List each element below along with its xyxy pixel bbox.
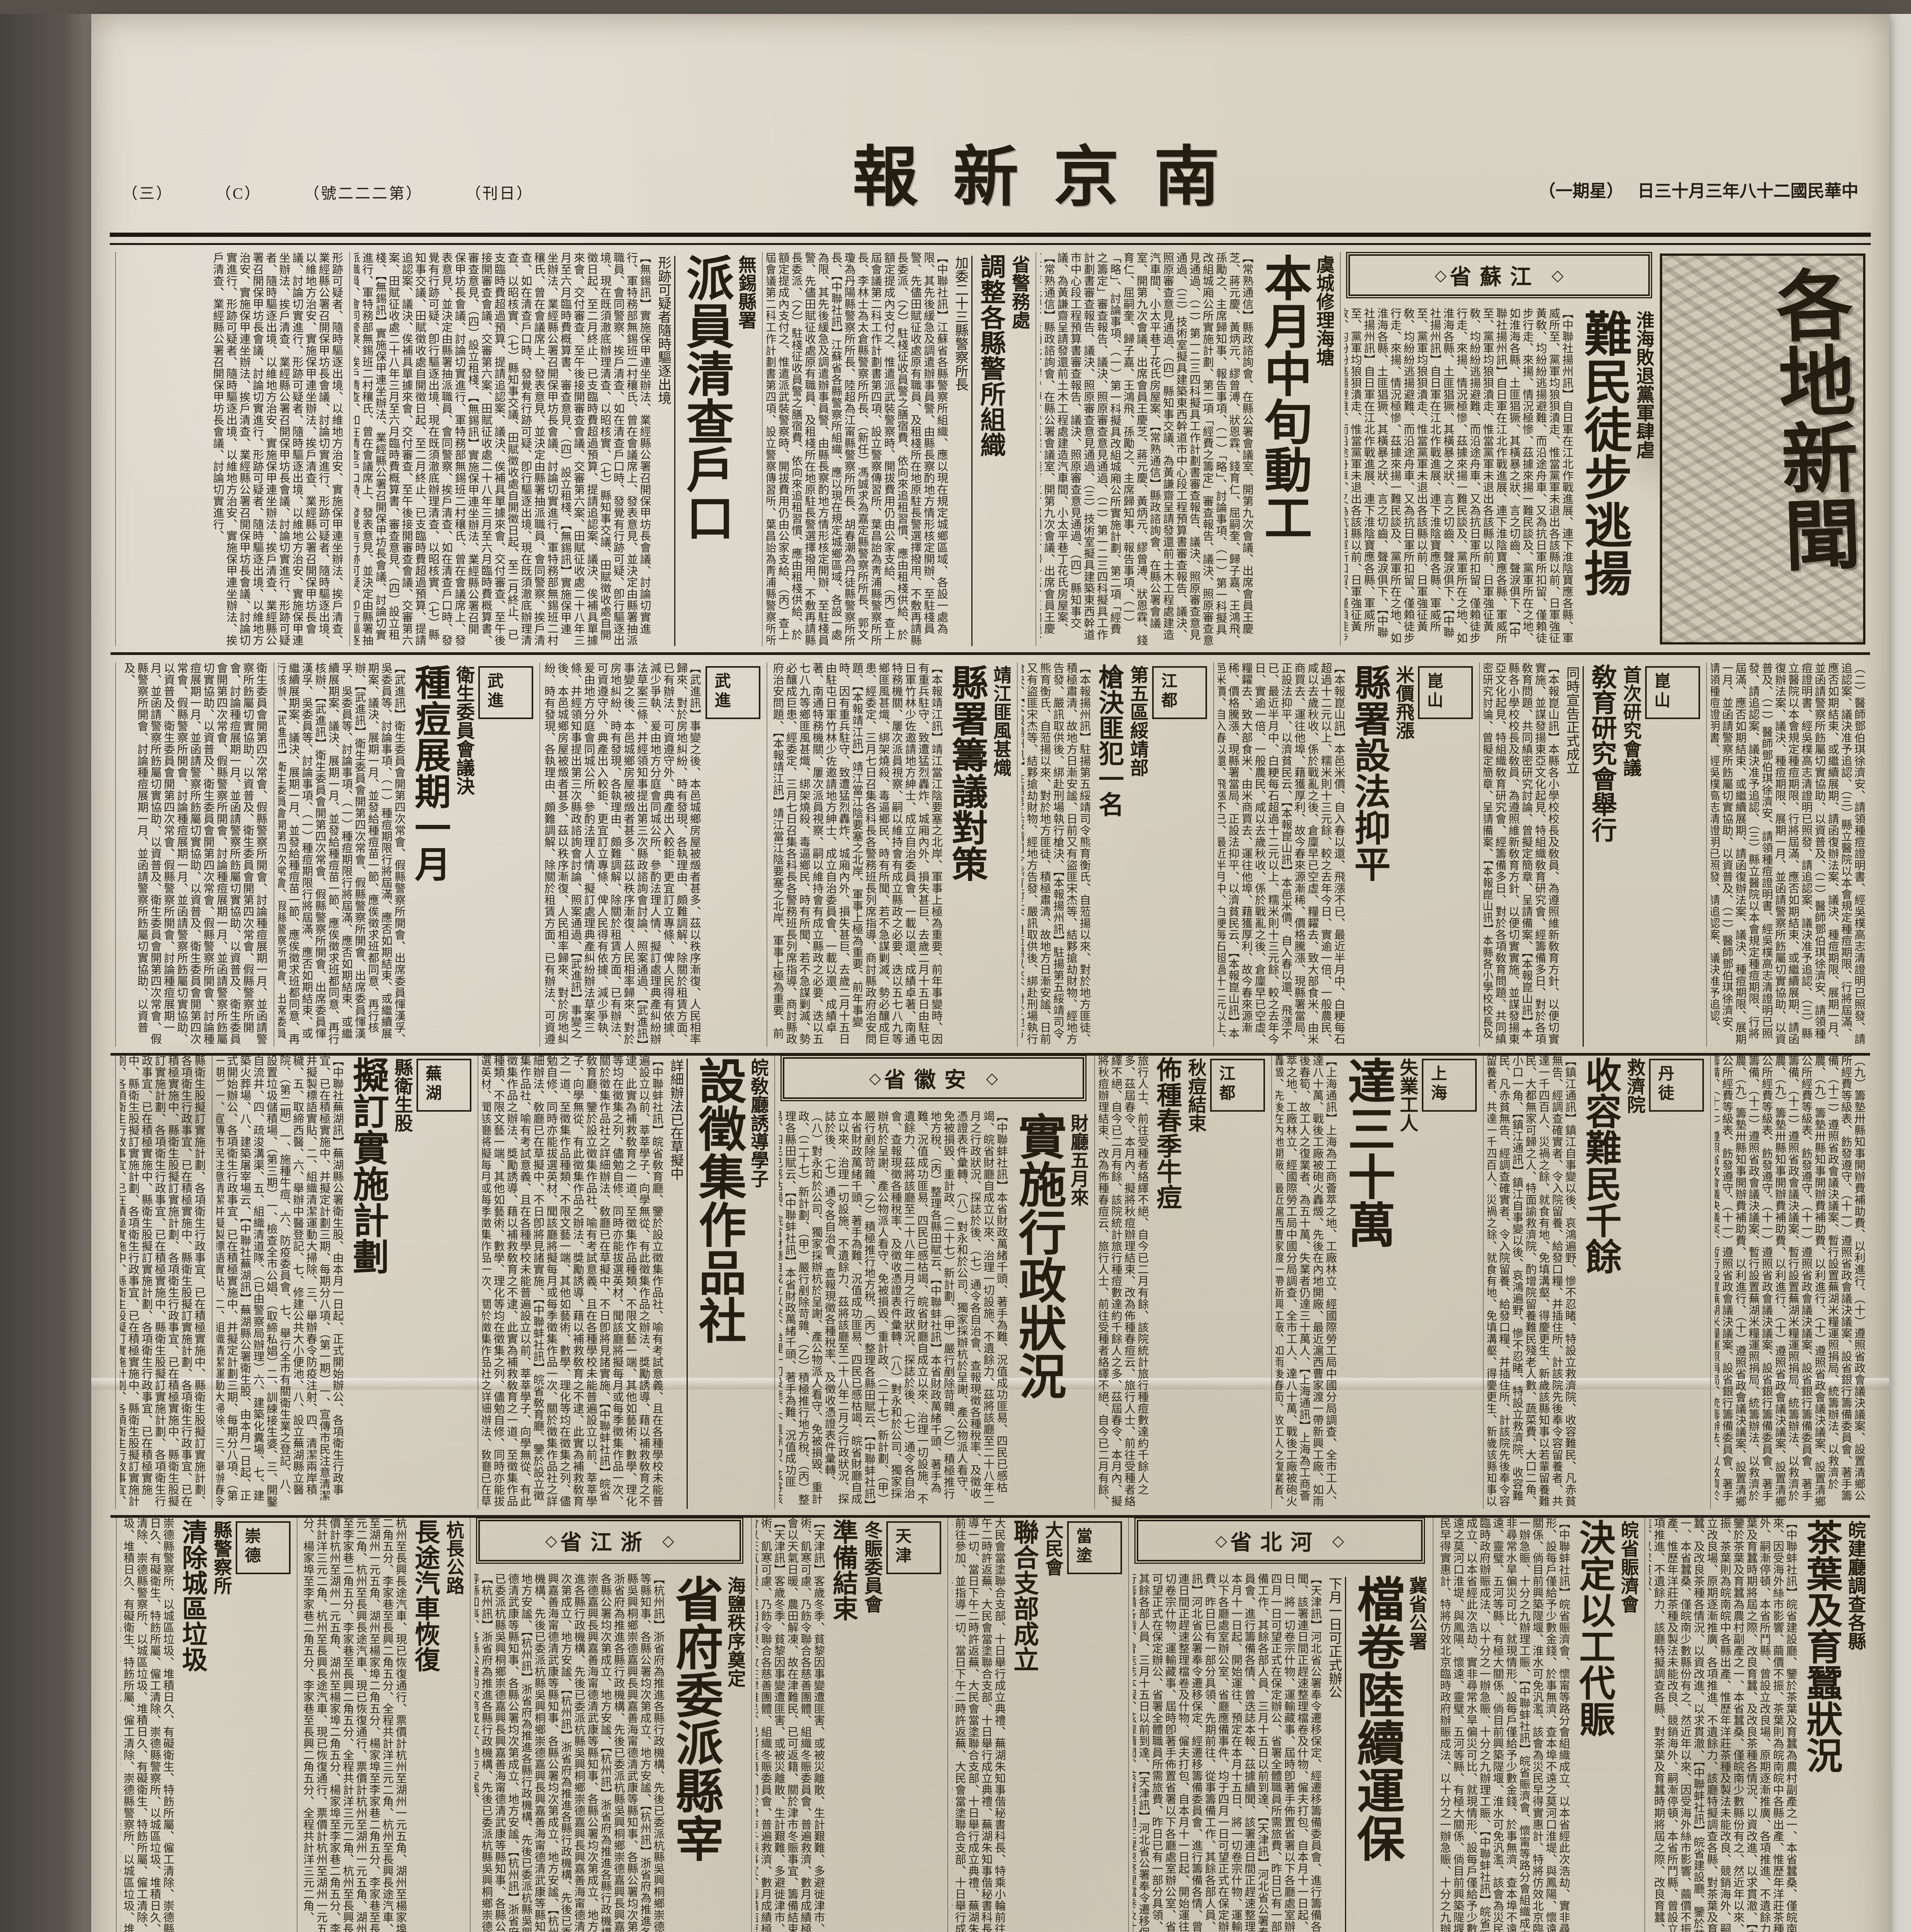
article-kicker: 縣警察所 (210, 1520, 231, 1932)
region-label: 丹徒 (1649, 1059, 1704, 1112)
region-label-text: 上海 (1426, 1065, 1449, 1104)
page-header: （三） （C） （號二二二第） （刊日） 報新京南 日三十月三年八十二國民華中 … (122, 134, 1858, 219)
article-headline: 設徵集作品社 (692, 1056, 743, 1509)
article-檔卷陸續運保: ◇省北河◇冀省公署檔卷陸續運保下月一日可正式辦公【天津訊】河北省公署奉令遷移保定… (1128, 1517, 1426, 1932)
article-headline: 清除城區垃圾 (179, 1519, 206, 1932)
newspaper-page: （三） （C） （號二二二第） （刊日） 報新京南 日三十月三年八十二國民華中 … (91, 14, 1889, 1932)
article-headline: 準備結束 (830, 1519, 856, 1932)
article-body: 大民會當塗聯合支部、十日舉行成立典禮、蕪湖朱知事偕秘書科長、特乘小輪前往參加、並… (952, 1517, 1006, 1932)
article-kicker: 大民會 (1042, 1520, 1063, 1932)
article-body: 旅行人士、前往受種者絡繹不絕、自今已二月有餘、該院統計旅行種痘數達約千餘人之多、… (1099, 1055, 1149, 1509)
article-headline: 聯合支部成立 (1010, 1519, 1037, 1932)
region-label: 當塗 (1067, 1521, 1122, 1574)
region-label-text: 崑山 (1422, 672, 1445, 711)
article-main: 淮海敗退黨軍肆虐難民徒步逃揚【中聯社揚州訊】自日軍在江北作戰進展、連下淮陰寶應各… (1345, 308, 1654, 646)
article-headline: 本月中旬動工 (1258, 253, 1308, 646)
section-label: 省蘇江 (1450, 260, 1540, 291)
article-kicker: 冀省公署 (1406, 1576, 1426, 1932)
article-headline: 實施行政狀況 (1012, 1112, 1063, 1509)
article-column: 縣衛生股擬訂實施計劃、各項衛生行政事宜、已在積極實施中、縣衛生股擬訂實施計劃、各… (115, 1055, 206, 1509)
article-body: 【中聯社訊】江蘇省各縣警察所組織、應以現在規定城鄉區域、各設一處為限、其先後緩急… (767, 252, 948, 646)
article-subhead: 詳細辦法已在草擬中 (668, 1059, 688, 1509)
article-kicker: 第五區綏靖部 (1127, 665, 1148, 1047)
article-headline: 派員清查戶口 (680, 253, 730, 646)
diamond-icon: ◇ (662, 1532, 674, 1550)
article-擬訂實施計劃: 蕪湖縣衛生股擬訂實施計劃【中聯社蕪湖訊】蕪湖縣公署衛生股、由本月一日起、正式開始… (212, 1055, 471, 1509)
diamond-icon: ◇ (869, 1069, 881, 1087)
article-column: 形跡可疑者、隨時驅逐出境、以維地方治安、實施保甲連坐辦法、挨戶清查、業經縣公署召… (115, 252, 343, 646)
article-headline: 槍決匪犯一名 (1095, 664, 1122, 1047)
article-設徵集作品社: 皖敎廳誘導學子設徵集作品社詳細辦法已在草擬中【中聯蚌社訊】皖省敎育廳、鑒於設立徵… (478, 1055, 768, 1509)
article-kicker: 皖省賑濟會 (1617, 1520, 1638, 1932)
article-敎育研究會舉行: 崑山首次研究會議敎育研究會舉行同時宣告正式成立【本報崑山訊】本縣各小學校校長及敎… (1479, 662, 1700, 1047)
article-body: 【天津訊】河北省公署奉令遷移保定、經遷移籌備委員會、進行籌備各情、曾迭誌本報、茲… (1133, 1573, 1322, 1932)
article-清除城區垃圾: 崇德縣警察所清除城區垃圾崇德縣警察所、以城區垃圾、堆積日久、有礙衛生、特飭所屬、… (116, 1517, 291, 1932)
article-kicker: 杭長公路 (443, 1520, 464, 1932)
article-headline: 收容難民千餘 (1581, 1056, 1619, 1509)
region-label: 武進 (478, 666, 533, 719)
news-band-provinces: 皖建廳調查各縣茶葉及育蠶狀況【中聯蚌社訊】皖省建設廳、鑒於茶葉及育蠶為農村副產之… (111, 1511, 1870, 1932)
article-body: 【中聯蚌社訊】皖省建設廳、鑒於茶葉及育蠶為農村副產之一、本省蠶桑、僅皖南少數縣份… (1649, 1517, 1797, 1932)
article-body: 【上海通訊】上海為工商薈萃之地、工廠林立、經國際勞工局中國分局調查、全市工人、達… (1276, 1055, 1337, 1509)
region-label: 崑山 (1418, 666, 1473, 719)
article-headline: 種痘展期一月 (410, 664, 449, 1047)
article-headline: 難民徒步逃揚 (1578, 309, 1628, 646)
article-body: 杭州至長興長途汽車、現已恢復通行、票價計杭州至湖州一元五角、湖州至楊家埠二角五分… (301, 1517, 407, 1932)
article-調整各縣警所組織: 省警務處調整各縣警所組織加委二十三縣警察所長【中聯社訊】江蘇省各縣警察所組織、應… (762, 252, 1029, 646)
local-news-title: 各地新聞 (1766, 265, 1855, 573)
article-kicker: 省警務處 (1008, 255, 1029, 646)
scan-edge-right (1889, 0, 1911, 1932)
article-body: 衛生委員會開第四次常會、假縣警察所開會、討論種痘展期一月、並函請警察所飭屬切實協… (120, 662, 267, 1047)
article-決定以工代賑: 皖省賑濟會決定以工代賑【中聯蚌社訊】皖省賑濟會、懷甯等路分會組織成立、以本省經此… (1433, 1517, 1638, 1932)
article-縣署設法抑平: 崑山米價飛漲縣署設法抑平【本報崑山訊】本邑米價、自入春以還、飛漲不已、最近半月中… (1213, 662, 1473, 1047)
issue-number: （號二二二第） (304, 181, 423, 203)
article-headline: 佈種春季牛痘 (1153, 1056, 1180, 1509)
article-body: 縣衛生股擬訂實施計劃、各項衛生行政事宜、已在積極實施中、縣衛生股擬訂實施計劃、各… (120, 1055, 206, 1509)
article-聯合支部成立: 當塗大民會聯合支部成立大民會當塗聯合支部、十日舉行成立典禮、蕪湖朱知事偕秘書科長… (947, 1517, 1122, 1932)
region-label-text: 武進 (482, 672, 506, 711)
section-header: ◇省江浙◇ (478, 1520, 741, 1561)
article-headline: 長途汽車恢復 (411, 1519, 438, 1932)
article-headline: 檔卷陸續運保 (1351, 1575, 1401, 1932)
article-column: 衛生委員會開第四次常會、假縣警察所開會、討論種痘展期一月、並函請警察所飭屬切實協… (115, 662, 267, 1047)
edition-mark: （C） (216, 181, 262, 203)
article-body: 【無錫訊】實施保甲連坐辦法、業經縣公署召開保甲坊長會議、討論切實進行、軍特務部無… (354, 252, 651, 646)
article-body: 【本報靖江訊】靖江當江陰要塞之北岸、軍事上極為重要、前年事變時、因有重兵駐守、致… (771, 662, 943, 1047)
article-kicker: 皖敎廳誘導學子 (747, 1058, 768, 1509)
region-label-text: 天津 (890, 1527, 914, 1566)
article-subhead: 同時宣告正式成立 (1564, 666, 1584, 1047)
article-kicker: 淮海敗退黨軍肆虐 (1633, 311, 1654, 646)
news-band-anhui: （九）籌墊卅縣知事開辦費補助費、以利進行、（十）遵照省政會議決議案、設置清鄉公所… (111, 1049, 1870, 1518)
article-main: 財廳五月來實施行政狀況【中聯蚌社訊】本省財政萬緒千頭、著手為難、況值成功匪易、四… (779, 1111, 1088, 1509)
article-body: 【中聯蚌社訊】皖省賑濟會、懷甯等路分會組織成立、以本省經此次浩劫、實非尋常水旱偏… (1437, 1517, 1570, 1932)
section-header: ◇省蘇江◇ (1348, 254, 1650, 296)
article-種痘展期一月: 武進衛生委員會議決種痘展期一月【武進訊】衛生委員會開第四次常會、假縣警察所開會、… (274, 662, 533, 1047)
article-實施行政狀況: ◇省徽安◇財廳五月來實施行政狀況【中聯蚌社訊】本省財政萬緒千頭、著手為難、況值成… (774, 1055, 1088, 1509)
article-kicker: 虞城修理海塘 (1313, 255, 1334, 646)
article-收容難民千餘: 丹徒救濟院收容難民千餘【鎮江通訊】鎮江自事變以後、哀鴻遍野、慘不忍睹、特設立救濟… (1483, 1055, 1704, 1509)
region-label-text: 當塗 (1071, 1527, 1095, 1566)
edition-tokens: （三） （C） （號二二二第） （刊日） (122, 181, 534, 219)
article-槍決匪犯一名: 江都第五區綏靖部槍決匪犯一名【本報揚州訊】駐揚第五綏靖司令熊育衡氏、自蒞揚以來、… (1017, 662, 1207, 1047)
daily-label: （刊日） (466, 181, 534, 203)
region-label: 崑山 (1645, 666, 1700, 719)
region-label: 天津 (886, 1521, 941, 1574)
article-body: 【本報崑山訊】本縣各小學校校長及敎員、為遵照維新敎育方針、以便切實實施、並謀發揚… (1484, 662, 1559, 1047)
article-headline: 茶葉及育蠶狀況 (1802, 1519, 1840, 1932)
scan-edge-left (0, 0, 92, 1932)
article-body: 【中聯蚌社訊】皖省敎育廳、鑒於設立徵集作品社、喻有考試意義、且在各種學校未能普遍… (482, 1055, 663, 1509)
diamond-icon: ◇ (1435, 266, 1447, 284)
article-kicker: 秋痘結束 (1185, 1058, 1205, 1509)
region-label-text: 丹徒 (1653, 1065, 1676, 1104)
article-body: 【本報揚州訊】駐揚第五綏靖司令熊育衡氏、自蒞揚以來、對於地方匪徒、積極肅清、故地… (1022, 662, 1091, 1047)
article-kicker: 縣衛生股 (391, 1058, 412, 1509)
article-headline: 決定以工代賑 (1575, 1519, 1613, 1932)
article-body: 【中聯社揚州訊】自日軍在江北作戰進展、連下淮陰寶應各縣、軍威所至、黨軍均狼狽潰走… (1345, 308, 1573, 646)
local-news-graphic: 各地新聞 (1660, 253, 1865, 645)
article-本月中旬動工: 虞城修理海塘本月中旬動工【常熟通信】縣政諮詢會、在縣公署會議室、開第九次會議、出… (1035, 252, 1334, 646)
article-body: （二）醫師鄧伯琪徐濟安、請領種痘證明書、經吳樸高志清證明已照發、請追認案、議決准… (1711, 662, 1865, 1047)
dateline: 日三十月三年八十二國民華中 （一期星） (1539, 177, 1858, 219)
article-column: （二）醫師鄧伯琪徐濟安、請領種痘證明書、經吳樸高志清證明已照發、請追認案、議決准… (1706, 662, 1865, 1047)
news-band-counties: （二）醫師鄧伯琪徐濟安、請領種痘證明書、經吳樸高志清證明已照發、請追認案、議決准… (111, 656, 1870, 1056)
article-kicker: 財廳五月來 (1067, 1114, 1088, 1509)
diamond-icon: ◇ (986, 1069, 998, 1087)
article-subhead: 形跡可疑者隨時驅逐出境 (656, 256, 675, 646)
article-派員清查戶口: 無錫縣署派員清查戶口形跡可疑者隨時驅逐出境【無錫訊】實施保甲連坐辦法、業經縣公署… (349, 252, 756, 646)
article-kicker: 失業工人 (1396, 1058, 1417, 1509)
article-body: 【鎮江通訊】鎮江自事變以後、哀鴻遍野、慘不忍睹、特設立救濟院、收容難民、凡赤貧無… (1488, 1055, 1576, 1509)
article-kicker: 救濟院 (1624, 1058, 1644, 1509)
article-body: 【中聯蚌社訊】本省財政萬緒千頭、著手為難、況值成功匪易、四民已感枯竭、皖省財廳自… (779, 1111, 1008, 1509)
diamond-icon: ◇ (1215, 1532, 1227, 1550)
region-label: 武進 (706, 666, 760, 719)
region-label-text: 蕪湖 (420, 1065, 444, 1104)
article-茶葉及育蠶狀況: 皖建廳調查各縣茶葉及育蠶狀況【中聯蚌社訊】皖省建設廳、鑒於茶葉及育蠶為農村副產之… (1644, 1517, 1865, 1932)
page-number: （三） (122, 181, 173, 203)
article-headline: 達三十萬 (1341, 1056, 1392, 1509)
article-body: 【常熟通信】縣政諮詢會、在縣公署會議室、開第九次會議、出席會員王慶芝、蔣元慶、黃… (1040, 252, 1253, 646)
region-label: 崇德 (236, 1521, 291, 1574)
article-準備結束: 天津冬賑委員會準備結束【天津訊】客歲冬季、貧黎因事變遭匪害、或被災離散、生計艱難… (751, 1517, 941, 1932)
section-label: 省江浙 (560, 1525, 651, 1556)
article-kicker: 海鹽秩序奠定 (724, 1576, 745, 1932)
article-body: 【本報崑山訊】本邑米價、自入春以還、飛漲不已、最近半月中、白粳每石超過十二元以上… (1218, 662, 1345, 1047)
article-body: 【中聯社蕪湖訊】蕪湖縣公署衛生股、由本月一日起、正式開始辦公、各項衛生行政事宜、… (216, 1055, 344, 1509)
region-label-text: 崑山 (1649, 672, 1673, 711)
date-text: 日三十月三年八十二國民華中 (1637, 177, 1858, 202)
newspaper-scan: （三） （C） （號二二二第） （刊日） 報新京南 日三十月三年八十二國民華中 … (0, 0, 1911, 1932)
article-body: 【天津訊】客歲冬季、貧黎因事變遭匪害、或被災離散、生計艱難、多避徙津市、以扶老攜… (756, 1517, 825, 1932)
section-header: ◇省徽安◇ (783, 1057, 1084, 1099)
region-label: 上海 (1422, 1059, 1477, 1112)
article-body: 【武進訊】事變之後、本邑城鄉房屋被燬者甚多、茲以秩序漸復、人民相率歸來、對於房地… (544, 662, 701, 1047)
newspaper-title: 報新京南 (852, 124, 1254, 219)
article-main: 海鹽秩序奠定省府委派縣宰【杭州訊】浙省府為推進各縣行政機構、先後已委派杭縣吳興桐… (474, 1573, 745, 1932)
article-難民徒步逃揚: ◇省蘇江◇淮海敗退黨軍肆虐難民徒步逃揚【中聯社揚州訊】自日軍在江北作戰進展、連下… (1340, 252, 1654, 646)
article-subhead: 下月一日可正式辦公 (1326, 1577, 1346, 1932)
article-省府委派縣宰: ◇省江浙◇海鹽秩序奠定省府委派縣宰【杭州訊】浙省府為推進各縣行政機構、先後已委派… (470, 1517, 745, 1932)
article-body: 崇德縣警察所、以城區垃圾、堆積日久、有礙衛生、特飭所屬、僱工清除、崇德縣警察所、… (121, 1517, 174, 1932)
article-column: （九）籌墊卅縣知事開辦費補助費、以利進行、（十）遵照省政會議決議案、設置清鄉公所… (1710, 1055, 1865, 1509)
article-body: 形跡可疑者、隨時驅逐出境、以維地方治安、實施保甲連坐辦法、挨戶清查、業經縣公署召… (120, 252, 343, 646)
article-main: 冀省公署檔卷陸續運保下月一日可正式辦公【天津訊】河北省公署奉令遷移保定、經遷移籌… (1133, 1573, 1426, 1932)
article-kicker: 無錫縣署 (735, 255, 756, 646)
region-label: 江都 (1210, 1059, 1265, 1112)
article-kicker: 冬賑委員會 (861, 1520, 882, 1932)
diamond-icon: ◇ (1552, 266, 1564, 284)
article-kicker: 衛生委員會議決 (453, 665, 474, 1047)
region-label-text: 江都 (1156, 672, 1180, 711)
article-headline: 縣署設法抑平 (1350, 664, 1388, 1047)
region-label-text: 崇德 (240, 1527, 263, 1566)
diamond-icon: ◇ (1332, 1532, 1344, 1550)
section-header: ◇省北河◇ (1137, 1520, 1423, 1561)
region-label: 蕪湖 (417, 1059, 471, 1112)
region-label-text: 江都 (1214, 1065, 1238, 1104)
article-長途汽車恢復: 杭長公路長途汽車恢復杭州至長興長途汽車、現已恢復通行、票價計杭州至湖州一元五角、… (297, 1517, 464, 1932)
scan-edge-top (0, 0, 1911, 14)
article-kicker: 米價飛漲 (1392, 665, 1413, 1047)
article-body: 【武進訊】衛生委員會開第四次常會、假縣警察所開會、出席委員惲漢孚、吳委員等、討論… (278, 662, 406, 1047)
diamond-icon: ◇ (545, 1532, 557, 1550)
article-kicker: 靖江匪風甚熾 (990, 665, 1011, 1047)
article-武進: 武進【武進訊】事變之後、本邑城鄉房屋被燬者甚多、茲以秩序漸復、人民相率歸來、對於… (539, 662, 760, 1047)
article-佈種春季牛痘: 江都秋痘結束佈種春季牛痘旅行人士、前往受種者絡繹不絕、自今已二月有餘、該院統計旅… (1094, 1055, 1265, 1509)
article-body: 【杭州訊】浙省府為推進各縣行政機構、先後已委派杭縣吳興桐鄉崇德嘉興長興嘉善海甯德… (474, 1573, 665, 1932)
article-kicker: 皖建廳調查各縣 (1845, 1520, 1865, 1932)
article-body: （九）籌墊卅縣知事開辦費補助費、以利進行、（十）遵照省政會議決議案、設置清鄉公所… (1715, 1055, 1865, 1509)
article-縣署籌議對策: 靖江匪風甚熾縣署籌議對策【本報靖江訊】靖江當江陰要塞之北岸、軍事上極為重要、前年… (767, 662, 1011, 1047)
article-kicker: 首次研究會議 (1620, 665, 1641, 1047)
region-label: 江都 (1152, 666, 1207, 719)
article-headline: 敎育研究會舉行 (1588, 664, 1615, 1047)
section-label: 省北河 (1230, 1525, 1321, 1556)
section-label: 省徽安 (884, 1063, 974, 1094)
article-subhead: 加委二十三縣警察所長 (953, 256, 973, 646)
news-band-jiangsu: 各地新聞◇省蘇江◇淮海敗退黨軍肆虐難民徒步逃揚【中聯社揚州訊】自日軍在江北作戰進… (111, 246, 1870, 655)
article-headline: 擬訂實施計劃 (349, 1056, 387, 1509)
article-headline: 縣署籌議對策 (947, 664, 986, 1047)
article-headline: 省府委派縣宰 (669, 1575, 719, 1932)
region-label-text: 武進 (709, 672, 733, 711)
weekday-text: （一期星） (1539, 177, 1624, 202)
article-headline: 調整各縣警所組織 (977, 253, 1004, 646)
article-達三十萬: 上海失業工人達三十萬【上海通訊】上海為工商薈萃之地、工廠林立、經國際勞工局中國分… (1271, 1055, 1477, 1509)
masthead-rule (110, 233, 1871, 245)
